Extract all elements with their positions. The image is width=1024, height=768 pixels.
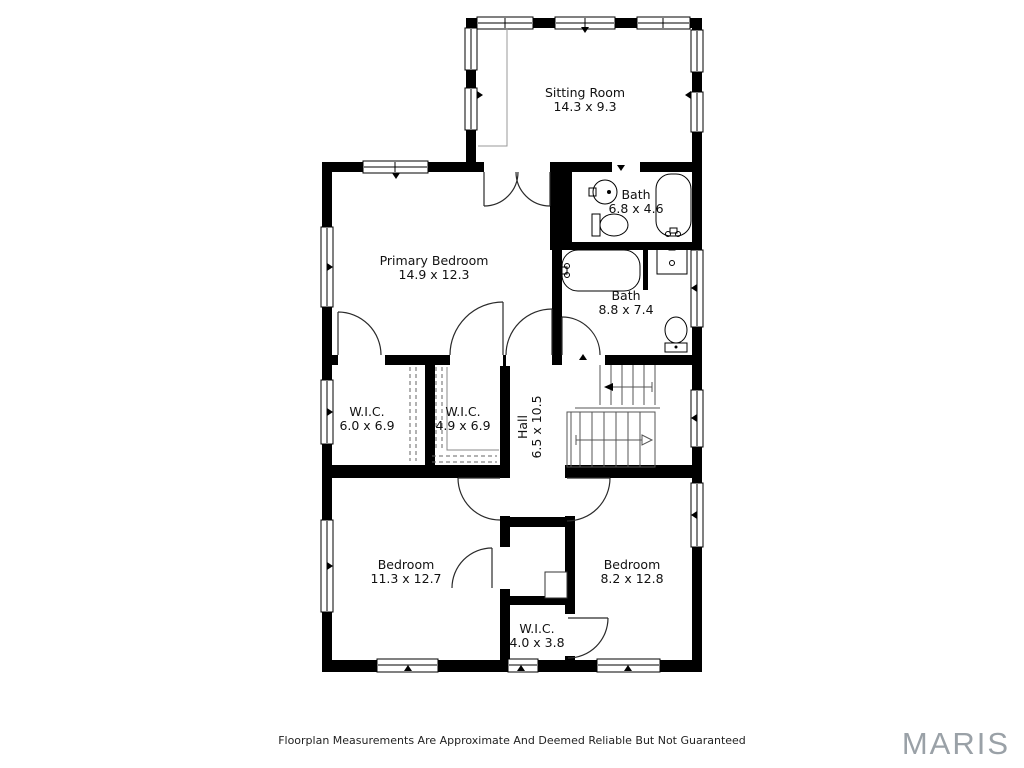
room-label-bedroom-left: Bedroom 11.3 x 12.7 [370, 558, 441, 586]
room-name: Hall [516, 395, 530, 458]
door-icon [458, 478, 500, 520]
toilet-icon [665, 317, 687, 352]
room-dims: 14.9 x 12.3 [380, 268, 489, 282]
room-label-wic-left: W.I.C. 6.0 x 6.9 [339, 405, 394, 433]
stairs-icon [567, 365, 660, 467]
room-dims: 6.5 x 10.5 [530, 395, 544, 458]
room-dims: 14.3 x 9.3 [545, 100, 625, 114]
room-label-sitting-room: Sitting Room 14.3 x 9.3 [545, 86, 625, 114]
chase-box [545, 572, 567, 598]
room-label-bath-lower: Bath 8.8 x 7.4 [598, 289, 653, 317]
door-icon [452, 548, 492, 588]
door-icon [506, 309, 552, 355]
window-icon [691, 92, 703, 132]
room-dims: 8.8 x 7.4 [598, 303, 653, 317]
room-dims: 6.8 x 4.6 [608, 202, 663, 216]
sink-icon [657, 244, 687, 274]
room-name: Bedroom [370, 558, 441, 572]
ceiling-break-line [478, 28, 507, 146]
room-dims: 4.9 x 6.9 [435, 419, 490, 433]
room-name: W.I.C. [435, 405, 490, 419]
interior-lines-layer [410, 28, 567, 598]
door-icon [338, 312, 381, 355]
window-icon [637, 17, 690, 29]
room-label-bath-upper: Bath 6.8 x 4.6 [608, 188, 663, 216]
disclaimer-text: Floorplan Measurements Are Approximate A… [0, 734, 1024, 747]
room-name: Bath [598, 289, 653, 303]
room-label-primary-bedroom: Primary Bedroom 14.9 x 12.3 [380, 254, 489, 282]
window-icon [363, 161, 428, 173]
room-label-bedroom-right: Bedroom 8.2 x 12.8 [600, 558, 663, 586]
room-dims: 8.2 x 12.8 [600, 572, 663, 586]
window-icon [477, 17, 533, 29]
bathtub-icon [561, 250, 640, 291]
room-label-hall: Hall 6.5 x 10.5 [516, 395, 544, 458]
room-dims: 4.0 x 3.8 [509, 636, 564, 650]
room-dims: 6.0 x 6.9 [339, 419, 394, 433]
room-label-wic-bottom: W.I.C. 4.0 x 3.8 [509, 622, 564, 650]
room-label-wic-center: W.I.C. 4.9 x 6.9 [435, 405, 490, 433]
room-name: W.I.C. [339, 405, 394, 419]
window-icon [691, 30, 703, 72]
door-icon [562, 317, 600, 355]
door-icon [450, 302, 503, 355]
room-name: Bath [608, 188, 663, 202]
toilet-icon [592, 214, 628, 236]
room-dims: 11.3 x 12.7 [370, 572, 441, 586]
maris-watermark: MARIS [902, 726, 1010, 762]
window-icon [465, 28, 477, 70]
floorplan-drawing [0, 0, 1024, 768]
double-door-icon [484, 172, 550, 206]
floorplan-page: Sitting Room 14.3 x 9.3 Primary Bedroom … [0, 0, 1024, 768]
room-name: Bedroom [600, 558, 663, 572]
room-name: W.I.C. [509, 622, 564, 636]
room-name: Sitting Room [545, 86, 625, 100]
stair-arrow-down [576, 435, 652, 445]
room-name: Primary Bedroom [380, 254, 489, 268]
window-icon [465, 88, 477, 130]
